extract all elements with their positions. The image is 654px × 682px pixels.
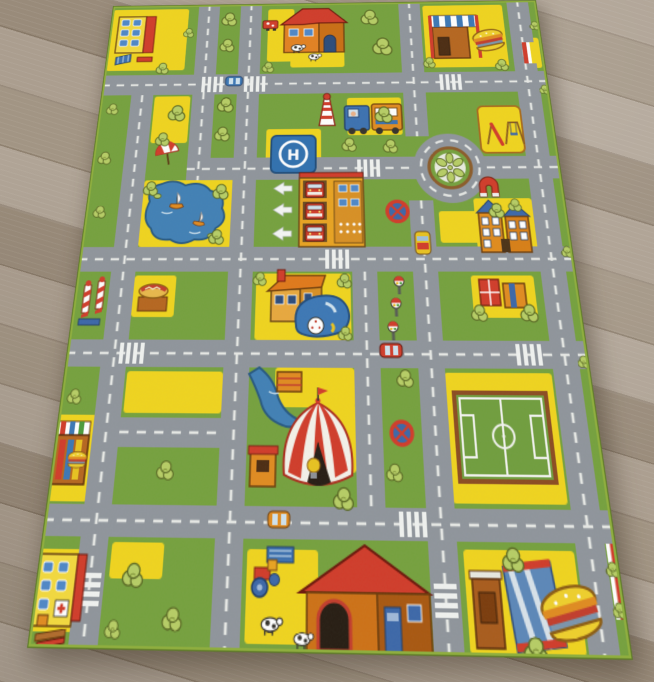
carpet-texture <box>27 0 633 660</box>
rug-artwork: H <box>27 0 633 660</box>
play-rug: H <box>27 0 633 660</box>
photo-scene: H <box>0 0 654 682</box>
